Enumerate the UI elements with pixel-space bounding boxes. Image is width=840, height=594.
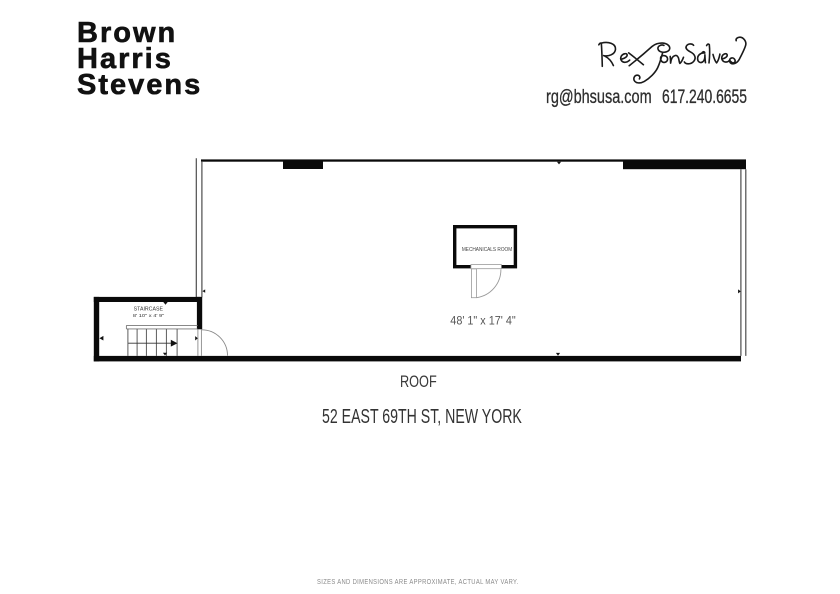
svg-text:MECHANICALS ROOM: MECHANICALS ROOM (462, 247, 512, 253)
svg-text:48' 1" x 17' 4": 48' 1" x 17' 4" (450, 314, 515, 328)
svg-text:8' 10" x 4' 9": 8' 10" x 4' 9" (133, 313, 165, 318)
svg-text:STAIRCASE: STAIRCASE (134, 306, 164, 312)
